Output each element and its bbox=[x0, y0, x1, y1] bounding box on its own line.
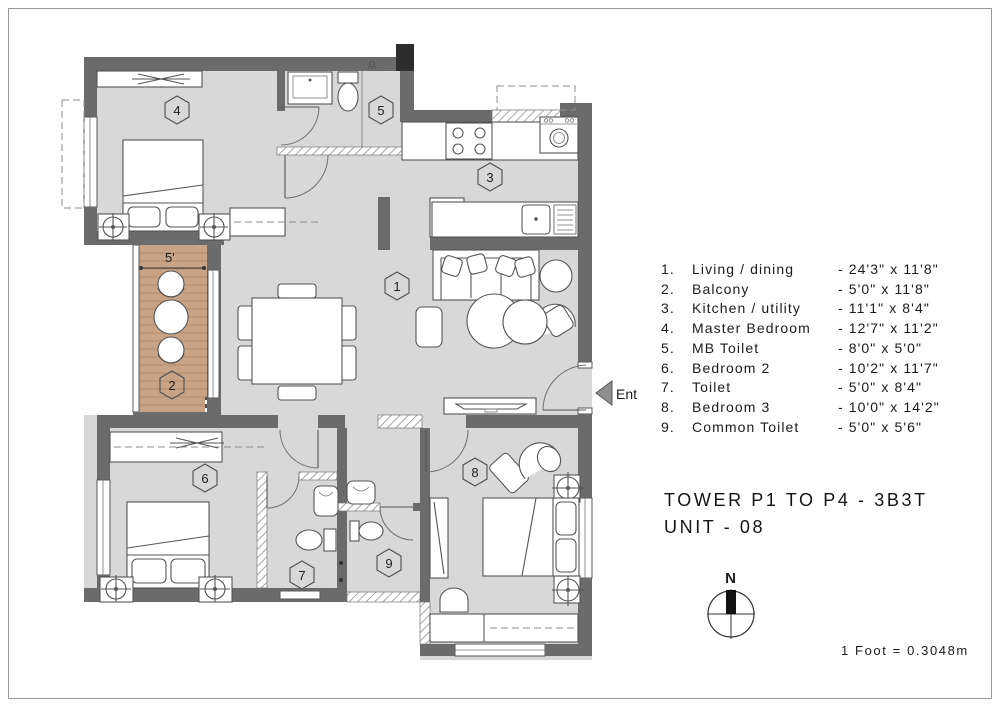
tv-unit bbox=[444, 398, 536, 414]
legend-number: 8. bbox=[661, 398, 692, 418]
legend-room-name: Master Bedroom bbox=[692, 319, 838, 339]
pillow-icon bbox=[166, 207, 198, 227]
compass-needle bbox=[726, 590, 736, 614]
legend-room-name: Kitchen / utility bbox=[692, 299, 838, 319]
legend-room-dims: - 5'0" x 11'8" bbox=[838, 280, 930, 300]
legend-room-dims: - 5'0" x 5'6" bbox=[838, 418, 922, 438]
svg-text:8: 8 bbox=[471, 465, 478, 480]
legend-row: 4.Master Bedroom- 12'7" x 11'2" bbox=[661, 319, 940, 339]
hatched-wall bbox=[277, 147, 408, 155]
room-legend: 1.Living / dining- 24'3" x 11'8" 2.Balco… bbox=[661, 260, 940, 437]
cushion-icon bbox=[466, 253, 488, 275]
legend-number: 6. bbox=[661, 359, 692, 379]
legend-room-dims: - 8'0" x 5'0" bbox=[838, 339, 922, 359]
column-marker bbox=[199, 575, 232, 602]
unit-title: UNIT - 08 bbox=[664, 514, 928, 541]
legend-row: 8.Bedroom 3- 10'0" x 14'2" bbox=[661, 398, 940, 418]
dish-rack-icon bbox=[554, 205, 576, 234]
legend-room-dims: - 5'0" x 8'4" bbox=[838, 378, 922, 398]
legend-room-dims: - 10'0" x 14'2" bbox=[838, 398, 940, 418]
svg-text:1: 1 bbox=[393, 279, 400, 294]
north-label: N bbox=[700, 570, 762, 588]
legend-room-dims: - 24'3" x 11'8" bbox=[838, 260, 939, 280]
coffee-table-icon bbox=[503, 300, 547, 344]
svg-text:3: 3 bbox=[486, 170, 493, 185]
hatched-wall bbox=[299, 472, 337, 480]
legend-room-dims: - 11'1" x 8'4" bbox=[838, 299, 930, 319]
balcony-railing bbox=[133, 245, 139, 412]
chair-icon bbox=[278, 284, 316, 298]
tower-title: TOWER P1 TO P4 - 3B3T bbox=[664, 487, 928, 514]
svg-text:6: 6 bbox=[201, 471, 208, 486]
compass-icon bbox=[700, 588, 762, 662]
legend-room-name: MB Toilet bbox=[692, 339, 838, 359]
chair-icon bbox=[278, 386, 316, 400]
entrance-label: Ent bbox=[616, 386, 637, 402]
entrance-arrow-icon bbox=[596, 381, 612, 405]
washbasin-icon bbox=[288, 72, 332, 104]
entrance-marker: Ent bbox=[596, 381, 637, 405]
pillow-icon bbox=[556, 502, 576, 535]
svg-text:7: 7 bbox=[298, 568, 305, 583]
washbasin-icon bbox=[314, 486, 338, 516]
legend-row: 1.Living / dining- 24'3" x 11'8" bbox=[661, 260, 940, 280]
legend-room-name: Common Toilet bbox=[692, 418, 838, 438]
legend-room-name: Bedroom 3 bbox=[692, 398, 838, 418]
legend-number: 4. bbox=[661, 319, 692, 339]
legend-number: 9. bbox=[661, 418, 692, 438]
legend-row: 2.Balcony- 5'0" x 11'8" bbox=[661, 280, 940, 300]
pillow-icon bbox=[132, 559, 166, 583]
svg-text:9: 9 bbox=[385, 556, 392, 571]
hatched-window bbox=[420, 602, 430, 644]
window bbox=[208, 270, 219, 398]
window bbox=[97, 480, 110, 575]
planter-icon bbox=[154, 300, 188, 334]
window bbox=[579, 498, 592, 578]
column-marker bbox=[552, 574, 584, 606]
wc-icon bbox=[296, 529, 336, 551]
title-block: TOWER P1 TO P4 - 3B3T UNIT - 08 bbox=[664, 487, 928, 541]
pillow-icon bbox=[128, 207, 160, 227]
legend-room-dims: - 12'7" x 11'2" bbox=[838, 319, 939, 339]
vent-window bbox=[280, 591, 320, 599]
washbasin-icon bbox=[347, 481, 375, 504]
legend-number: 5. bbox=[661, 339, 692, 359]
stove-icon bbox=[446, 123, 492, 159]
hatched-wall bbox=[257, 472, 267, 588]
wc-icon bbox=[350, 521, 383, 541]
balcony-width-label: 5' bbox=[165, 250, 175, 265]
washing-machine-icon bbox=[540, 117, 578, 153]
hatched-wall bbox=[347, 592, 420, 602]
window bbox=[84, 117, 97, 207]
column-marker bbox=[199, 213, 230, 241]
dining-table-icon bbox=[252, 298, 342, 384]
pillow-icon bbox=[556, 539, 576, 572]
svg-text:5: 5 bbox=[377, 103, 384, 118]
column-marker bbox=[100, 575, 133, 602]
legend-number: 3. bbox=[661, 299, 692, 319]
svg-text:4: 4 bbox=[173, 103, 180, 118]
scale-note: 1 Foot = 0.3048m bbox=[841, 643, 969, 658]
column bbox=[396, 44, 414, 71]
pouf-icon bbox=[440, 588, 468, 612]
floor-plan-sheet: 5' 2 bbox=[0, 0, 1000, 707]
legend-room-name: Living / dining bbox=[692, 260, 838, 280]
legend-row: 3.Kitchen / utility- 11'1" x 8'4" bbox=[661, 299, 940, 319]
wc-icon bbox=[338, 72, 358, 111]
dining-set bbox=[238, 284, 356, 400]
legend-room-name: Balcony bbox=[692, 280, 838, 300]
ottoman-icon bbox=[416, 307, 442, 347]
side-table-icon bbox=[540, 260, 572, 292]
hatched-wall bbox=[378, 415, 422, 428]
legend-row: 6.Bedroom 2- 10'2" x 11'7" bbox=[661, 359, 940, 379]
legend-row: 7.Toilet- 5'0" x 8'4" bbox=[661, 378, 940, 398]
legend-room-name: Bedroom 2 bbox=[692, 359, 838, 379]
legend-number: 2. bbox=[661, 280, 692, 300]
legend-room-name: Toilet bbox=[692, 378, 838, 398]
svg-text:2: 2 bbox=[168, 378, 175, 393]
legend-number: 1. bbox=[661, 260, 692, 280]
north-compass: N bbox=[700, 570, 762, 667]
legend-row: 5.MB Toilet- 8'0" x 5'0" bbox=[661, 339, 940, 359]
legend-number: 7. bbox=[661, 378, 692, 398]
legend-row: 9.Common Toilet- 5'0" x 5'6" bbox=[661, 418, 940, 438]
column-marker bbox=[98, 213, 129, 241]
legend-room-dims: - 10'2" x 11'7" bbox=[838, 359, 939, 379]
